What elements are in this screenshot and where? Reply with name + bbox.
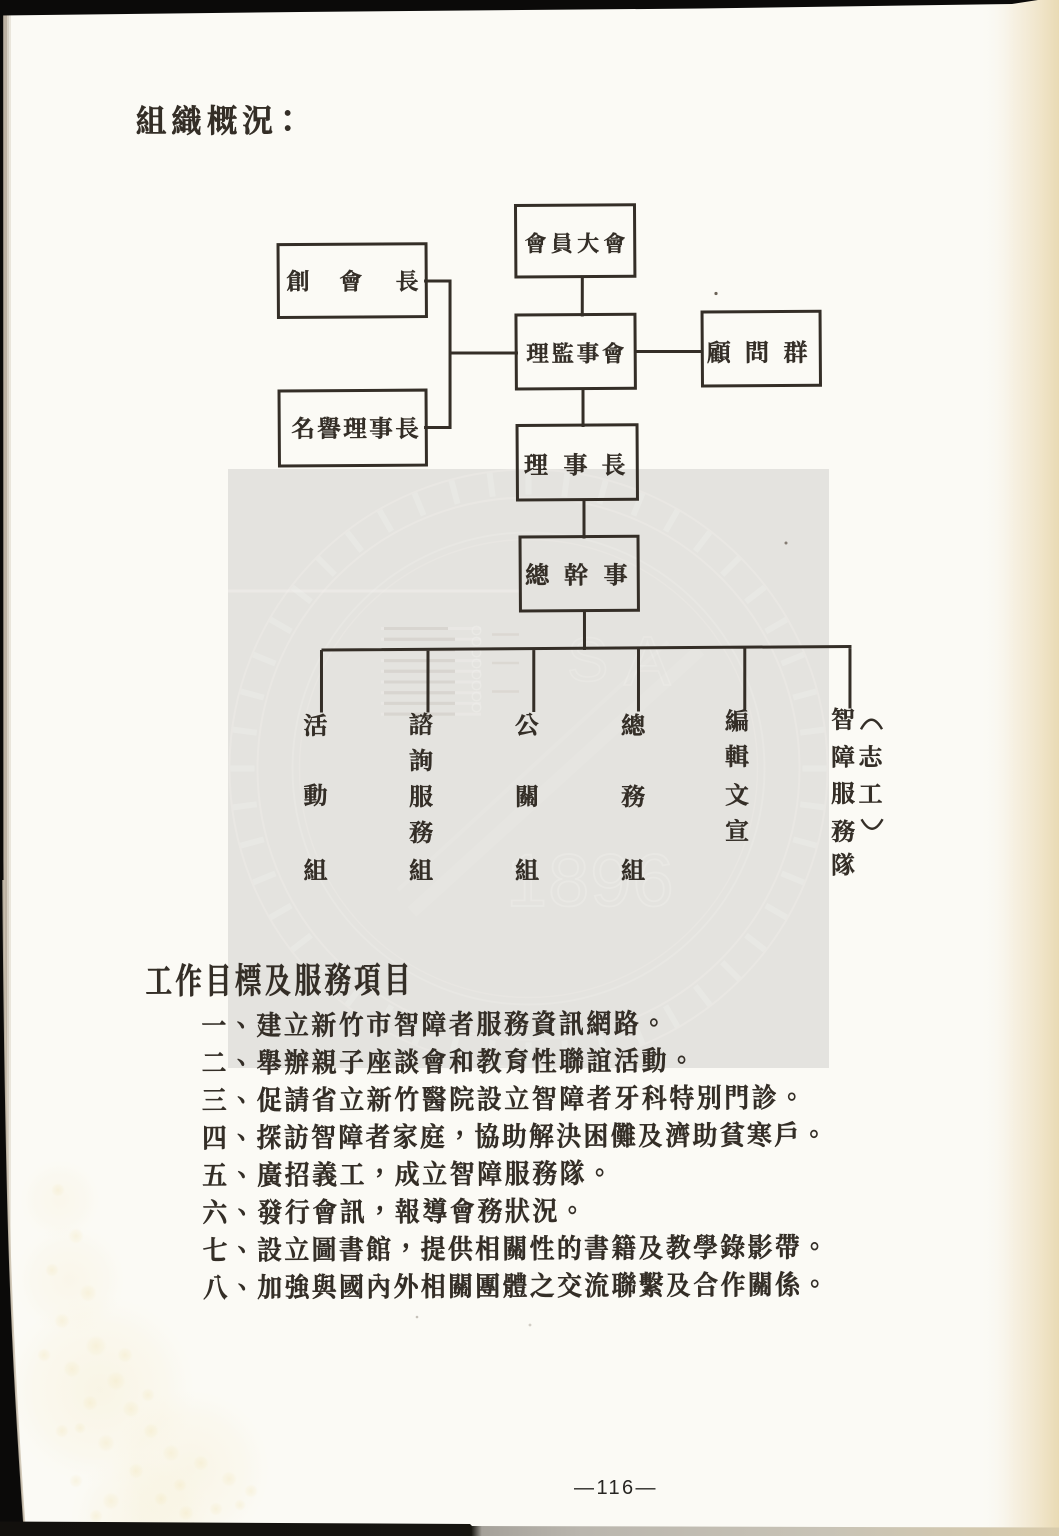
svg-text:1896: 1896	[506, 839, 675, 922]
svg-text:A: A	[624, 622, 671, 700]
svg-text:S: S	[567, 626, 608, 695]
svg-text:—116—: —116—	[574, 1477, 658, 1499]
